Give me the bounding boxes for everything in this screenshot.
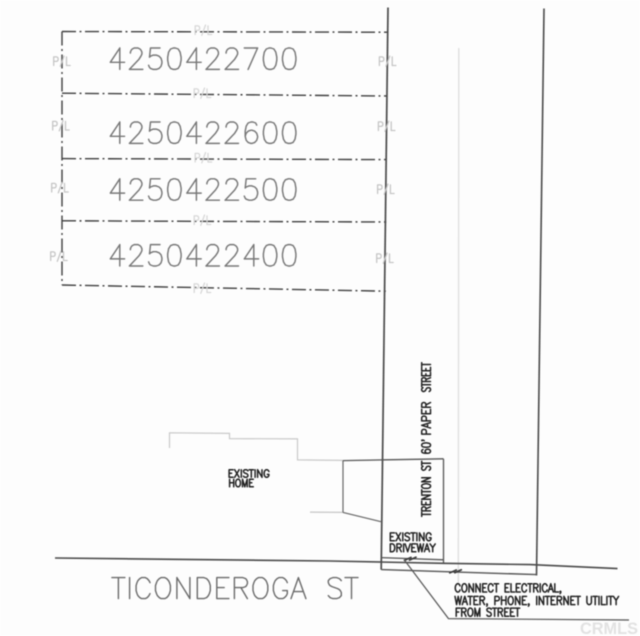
- svg-text:CRMLS: CRMLS: [580, 619, 638, 636]
